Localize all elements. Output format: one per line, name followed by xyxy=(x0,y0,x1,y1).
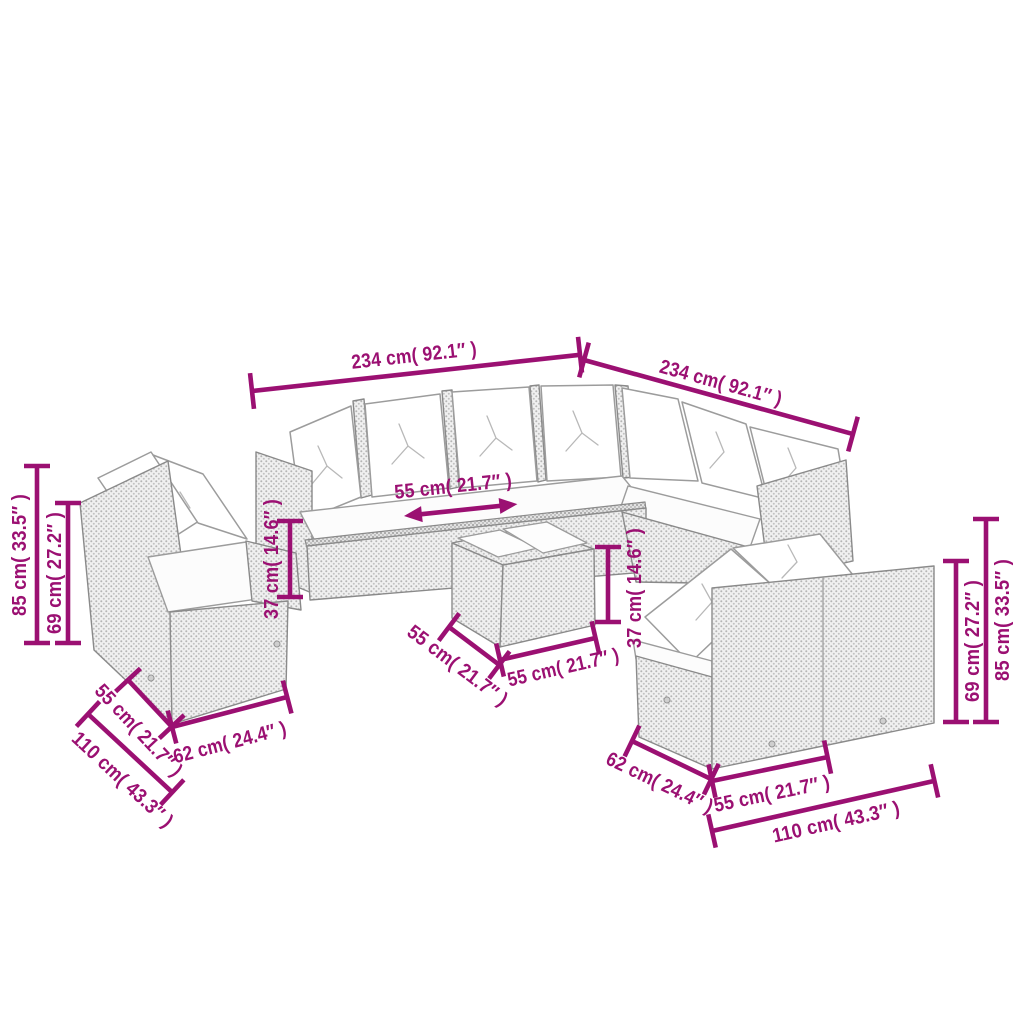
table-right-face xyxy=(500,549,595,647)
dimension-label: 69 cm( 27.2″ ) xyxy=(962,580,984,702)
dimension-label: 37 cm( 14.6″ ) xyxy=(624,528,646,648)
dimension-label: 85 cm( 33.5″ ) xyxy=(992,559,1014,681)
screw-dot xyxy=(664,697,670,703)
screw-dot xyxy=(769,741,775,747)
sofa-set-illustration xyxy=(80,385,934,769)
back-cushion xyxy=(541,385,621,481)
back-cushion xyxy=(622,388,698,481)
dimension-label: 85 cm( 33.5″ ) xyxy=(9,494,31,616)
screw-dot xyxy=(148,675,154,681)
dimension-right-seat-height: 37 cm( 14.6″ ) xyxy=(595,528,646,648)
dimension-label: 55 cm( 21.7″ ) xyxy=(505,644,621,691)
dimension-label: 37 cm( 14.6″ ) xyxy=(261,499,283,619)
dimension-left-backrest-height: 69 cm( 27.2″ ) xyxy=(44,503,81,643)
dimension-label: 62 cm( 24.4″ ) xyxy=(171,718,289,769)
screw-dot xyxy=(274,641,280,647)
sofa-set-dimension-drawing: 234 cm( 92.1″ ) 234 cm( 92.1″ ) 55 cm( 2… xyxy=(0,0,1024,1024)
screw-dot xyxy=(880,718,886,724)
dimension-right-backrest-height: 69 cm( 27.2″ ) xyxy=(943,561,984,722)
dimension-diagram: 234 cm( 92.1″ ) 234 cm( 92.1″ ) 55 cm( 2… xyxy=(0,0,1024,1024)
coffee-table xyxy=(452,522,595,647)
dimension-label: 69 cm( 27.2″ ) xyxy=(44,512,66,634)
